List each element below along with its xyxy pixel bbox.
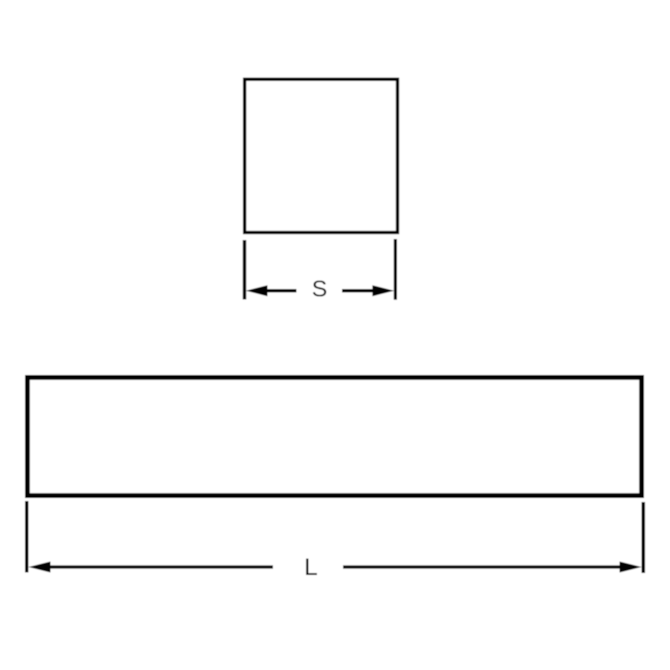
svg-text:S: S [312,276,328,302]
svg-text:L: L [304,554,318,581]
